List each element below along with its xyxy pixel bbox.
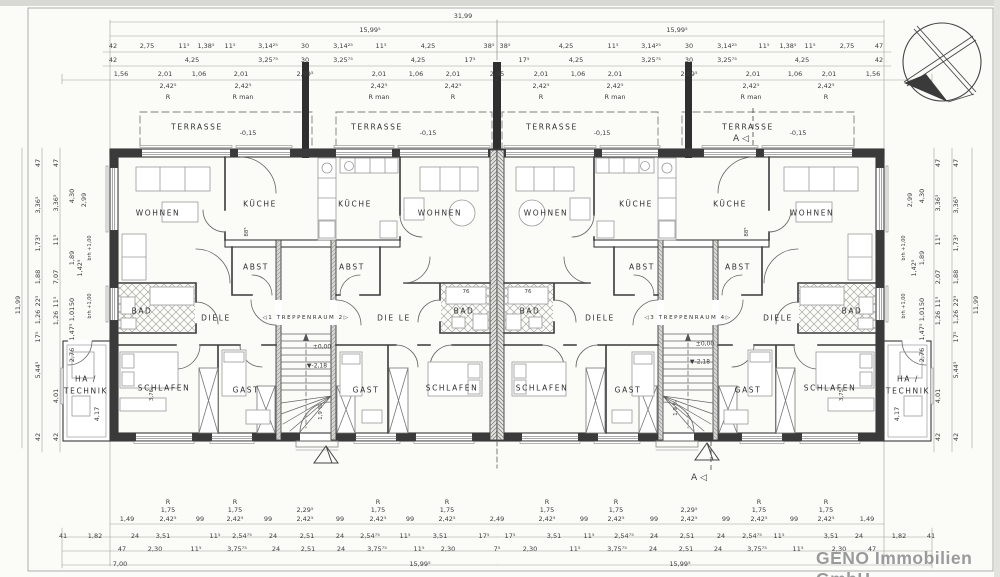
chimney-center <box>493 62 497 158</box>
scan-edge <box>0 0 1000 6</box>
furniture <box>120 158 488 424</box>
watermark: GENO Immobilien GmbH <box>816 548 1000 577</box>
building-left-half <box>22 20 497 568</box>
stairs <box>281 334 331 433</box>
floor-plan-page: 31,9915,99⁵15,99⁵422,7511⁵1,38⁵11⁵3,14²⁵… <box>0 0 1000 577</box>
building-right-half <box>497 20 972 568</box>
north-arrow-icon <box>903 23 981 102</box>
floor-plan-drawing <box>0 0 1000 577</box>
door-arcs <box>176 157 452 369</box>
chimney <box>302 62 309 158</box>
scan-edge-right <box>994 0 1000 577</box>
terrace-outline <box>140 112 492 149</box>
annex-ha-technik <box>61 340 110 442</box>
dimension-lines <box>22 20 497 568</box>
